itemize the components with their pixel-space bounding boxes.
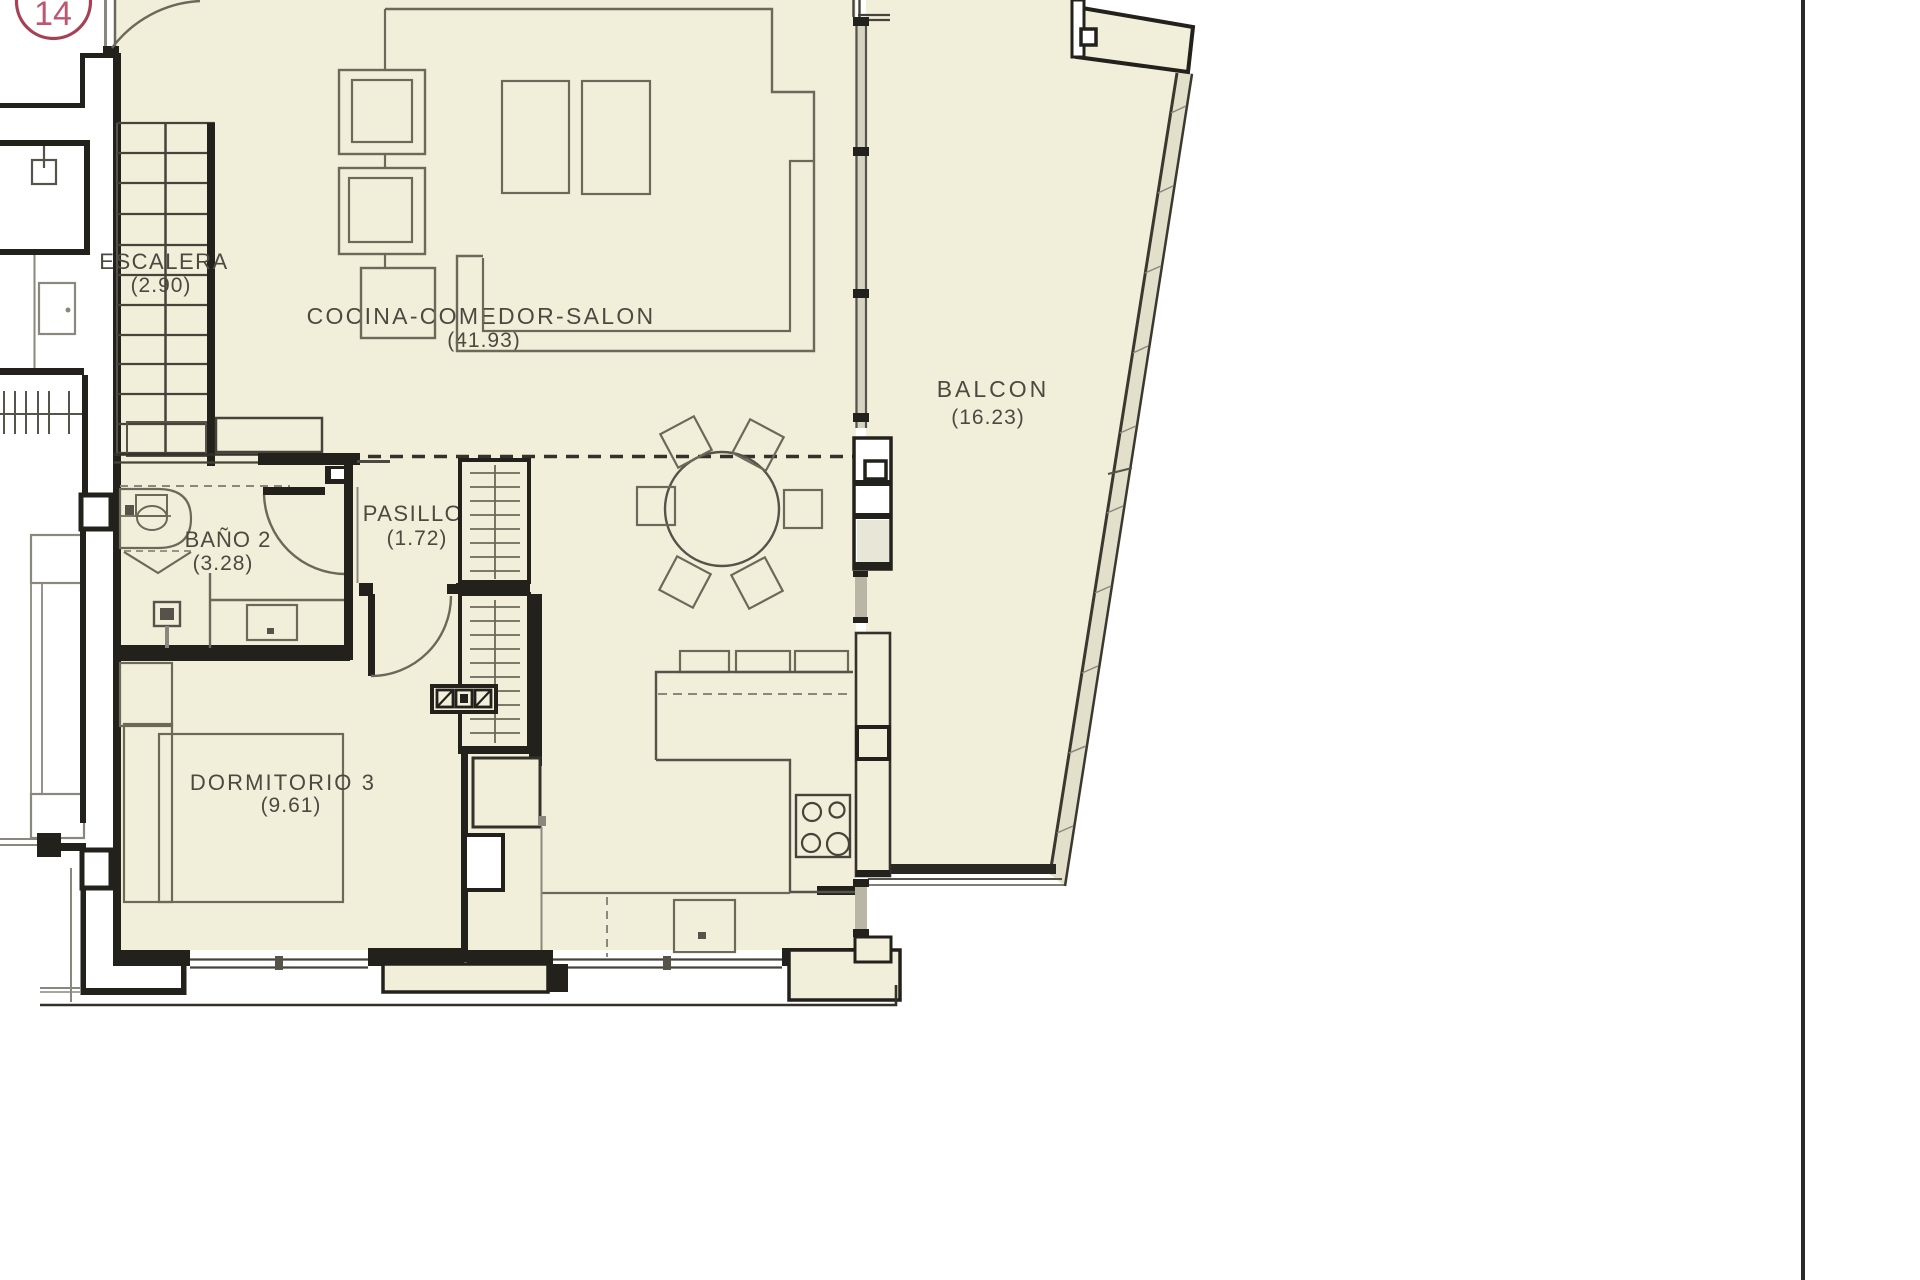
svg-text:PASILLO: PASILLO xyxy=(363,501,464,526)
svg-text:(16.23): (16.23) xyxy=(951,406,1025,429)
svg-text:BAÑO 2: BAÑO 2 xyxy=(185,527,272,552)
svg-text:ESCALERA: ESCALERA xyxy=(99,249,228,274)
svg-text:(1.72): (1.72) xyxy=(387,527,448,550)
svg-text:(41.93): (41.93) xyxy=(447,329,521,352)
svg-text:DORMITORIO 3: DORMITORIO 3 xyxy=(190,770,376,795)
svg-text:(2.90): (2.90) xyxy=(131,274,192,297)
svg-text:(3.28): (3.28) xyxy=(193,552,254,575)
svg-text:14: 14 xyxy=(34,0,72,33)
svg-text:(9.61): (9.61) xyxy=(261,794,322,817)
svg-text:COCINA-COMEDOR-SALON: COCINA-COMEDOR-SALON xyxy=(307,303,656,329)
svg-text:BALCON: BALCON xyxy=(937,376,1050,402)
